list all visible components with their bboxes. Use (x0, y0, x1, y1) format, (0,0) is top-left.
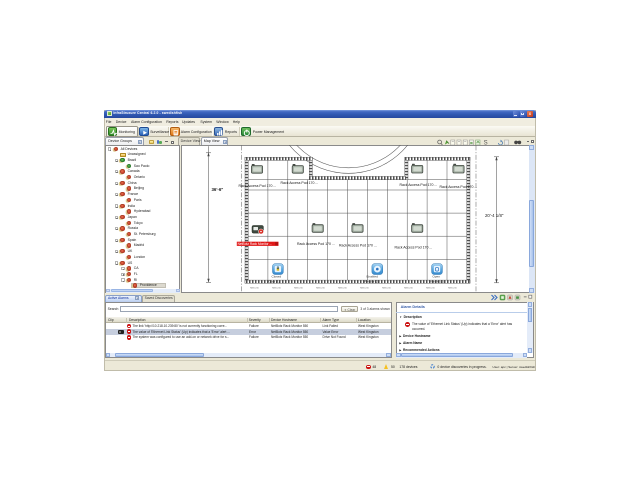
svg-text:NB30-S0: NB30-S0 (338, 288, 348, 290)
svg-text:Open: Open (432, 275, 440, 279)
svg-text:Reader (2): Reader (2) (364, 280, 379, 284)
svg-text:NB30-S0: NB30-S0 (294, 288, 304, 290)
svg-text:NetBotz Rack Monitor ...: NetBotz Rack Monitor ... (238, 242, 273, 246)
svg-text:Rack Access Pod 170 ...: Rack Access Pod 170 ... (297, 242, 335, 246)
svg-text:Rack Access Pod 170 ...: Rack Access Pod 170 ... (239, 184, 277, 188)
svg-text:Rack Access Pod 170 ...: Rack Access Pod 170 ... (281, 181, 319, 185)
svg-text:Rack Access Pod 170 ...: Rack Access Pod 170 ... (439, 185, 477, 189)
svg-text:NB30-S0: NB30-S0 (448, 288, 458, 290)
svg-text:Closed: Closed (272, 275, 282, 279)
svg-text:NB30-S0: NB30-S0 (360, 288, 370, 290)
svg-text:NB30-S0: NB30-S0 (382, 288, 392, 290)
svg-text:NB30-S0: NB30-S0 (426, 288, 436, 290)
svg-text:NB30-S0: NB30-S0 (250, 288, 260, 290)
svg-text:NB30-S0: NB30-S0 (316, 288, 326, 290)
svg-text:NB30-S0: NB30-S0 (272, 288, 282, 290)
svg-text:Enabled: Enabled (366, 275, 378, 279)
svg-text:Handle (2): Handle (2) (429, 280, 443, 284)
svg-text:36'-6": 36'-6" (212, 187, 224, 192)
svg-text:Rack Access Pod 170 ...: Rack Access Pod 170 ... (394, 246, 432, 250)
svg-text:Rack Access Pod 170 ...: Rack Access Pod 170 ... (399, 183, 437, 187)
svg-text:Door (1): Door (1) (269, 280, 280, 284)
svg-text:Rack Access Pod 170 ...: Rack Access Pod 170 ... (339, 244, 377, 248)
svg-text:NB30-S0: NB30-S0 (404, 288, 414, 290)
svg-text:20'-4 1/8": 20'-4 1/8" (485, 213, 504, 218)
